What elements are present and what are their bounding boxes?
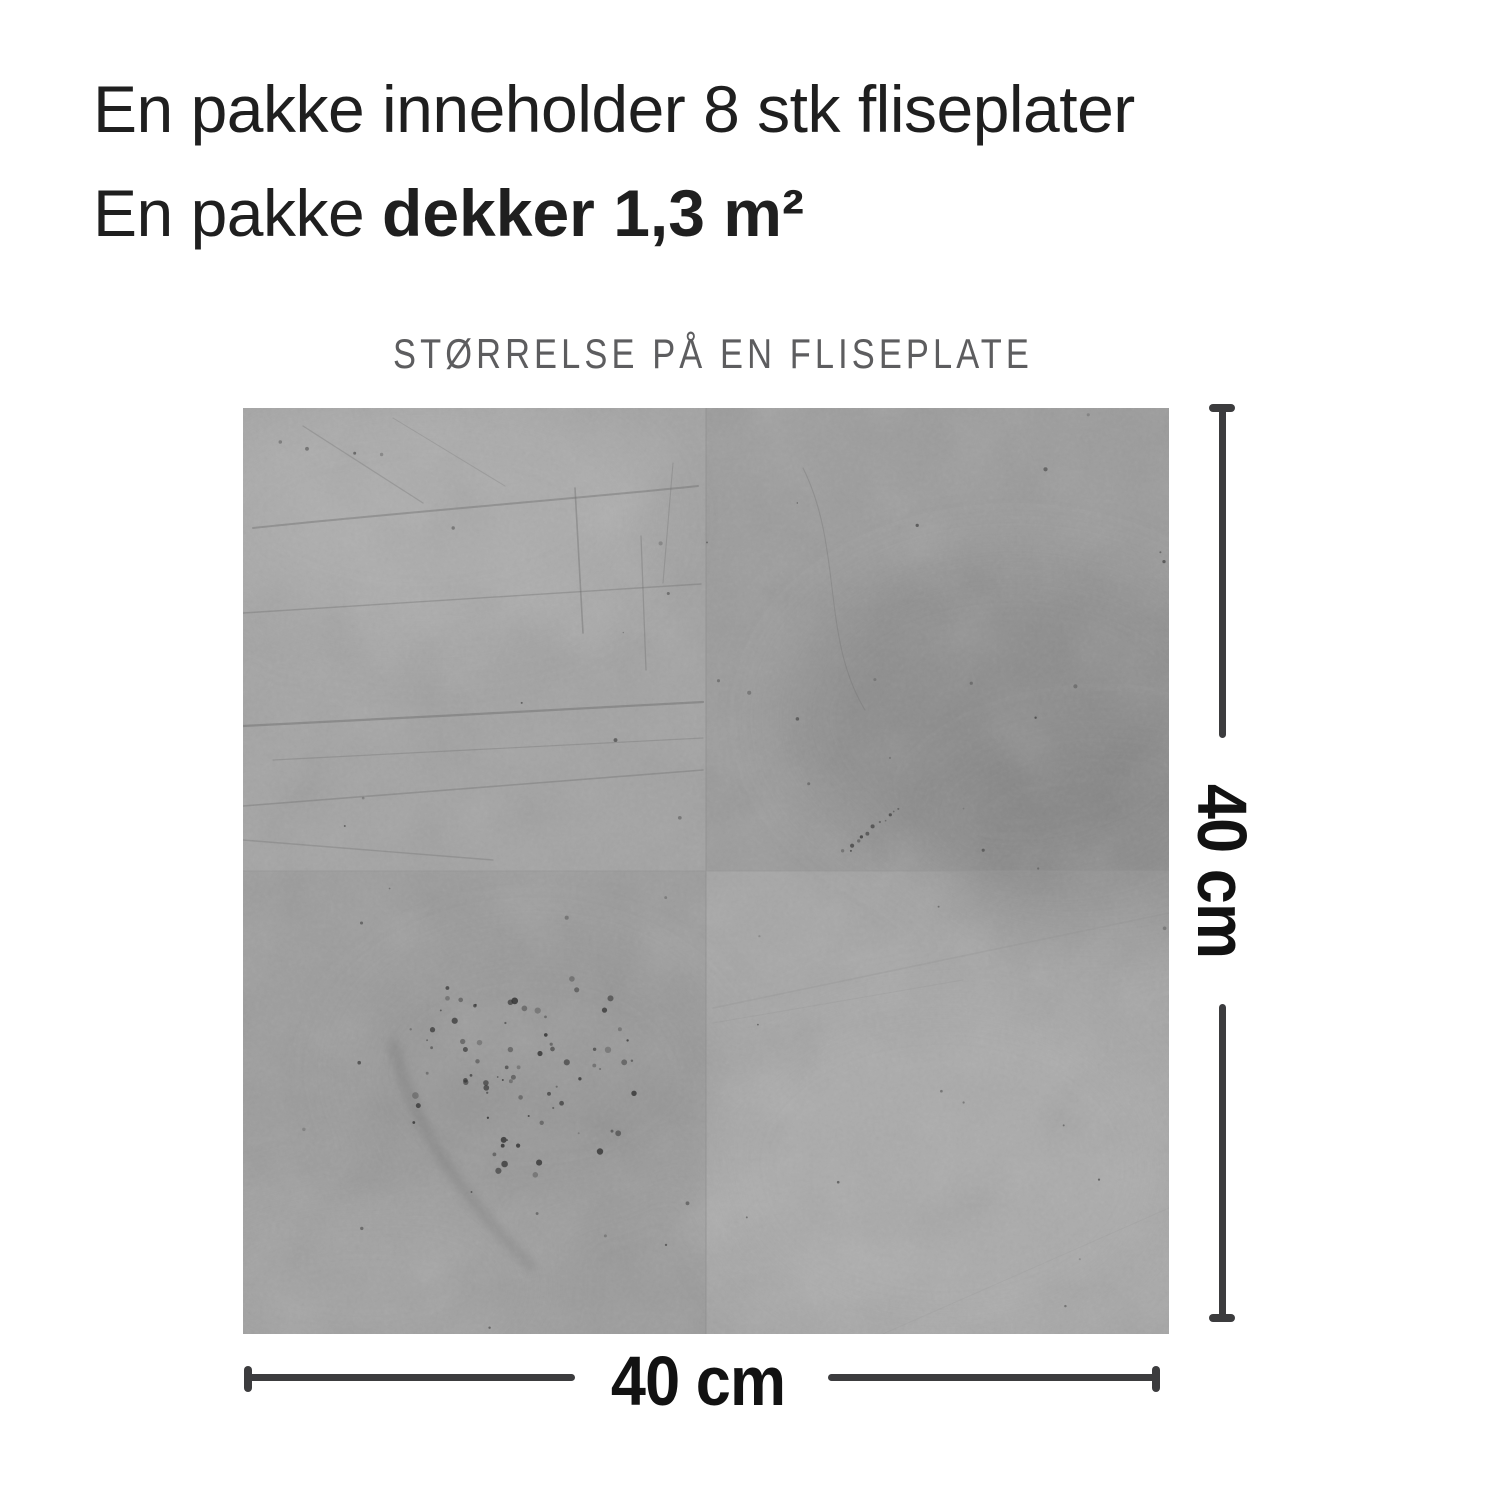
- heading-line-2-bold: dekker 1,3 m²: [382, 176, 804, 250]
- diagram-subtitle: STØRRELSE PÅ EN FLISEPLATE: [333, 330, 1092, 378]
- tile-photo: [243, 408, 1169, 1334]
- width-dimension-left-segment: [248, 1374, 575, 1381]
- height-dimension-bottom-cap: [1209, 1314, 1235, 1322]
- tile-texture-svg: [243, 408, 1169, 1334]
- product-infographic: En pakke inneholder 8 stk fliseplater En…: [0, 0, 1500, 1500]
- heading-line-1: En pakke inneholder 8 stk fliseplater: [93, 57, 1135, 161]
- height-dimension-label: 40 cm: [1182, 784, 1262, 958]
- heading-line-2: En pakke dekker 1,3 m²: [93, 161, 1135, 265]
- height-dimension-bottom-segment: [1219, 1004, 1226, 1318]
- height-dimension-top-segment: [1219, 408, 1226, 738]
- heading-line-2-regular: En pakke: [93, 176, 364, 250]
- width-dimension-label: 40 cm: [611, 1341, 785, 1421]
- width-dimension-right-segment: [828, 1374, 1156, 1381]
- width-dimension-right-cap: [1152, 1366, 1160, 1392]
- heading: En pakke inneholder 8 stk fliseplater En…: [93, 57, 1135, 265]
